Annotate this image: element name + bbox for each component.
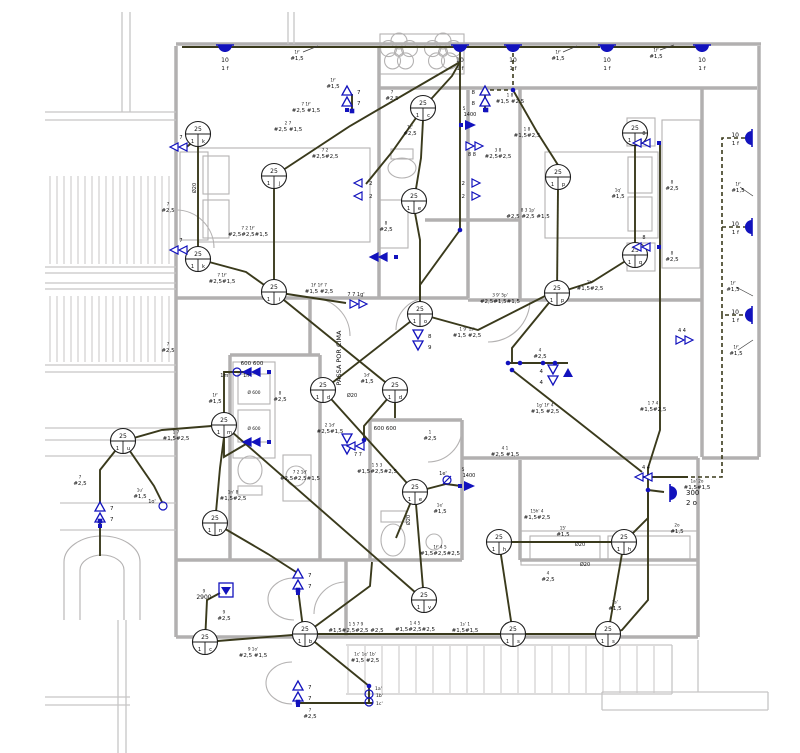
door-arc bbox=[80, 555, 124, 620]
wire-run bbox=[608, 542, 624, 634]
wire-gauge-label: Ø20 bbox=[347, 392, 357, 399]
wire-run-dashed bbox=[690, 315, 722, 477]
ceiling-point-circuit: 1 bbox=[417, 605, 420, 611]
ceiling-point-circuit: 1 bbox=[267, 297, 270, 303]
conductor-ticks: 7 bbox=[167, 202, 170, 207]
wire-gauge-label: #2,5#2,5 bbox=[312, 154, 339, 160]
conductor-ticks: 1 bbox=[429, 430, 432, 435]
conductor-ticks: 1s' bbox=[612, 600, 618, 605]
wire-gauge-label: #2,5 #1,5 bbox=[292, 108, 321, 114]
conductor-ticks: 9 bbox=[203, 589, 206, 594]
conductor-ticks: 7 bbox=[391, 90, 394, 95]
conductor-ticks: 7 2 1f' bbox=[241, 226, 254, 231]
wall-light-power: 10 bbox=[731, 132, 739, 139]
wire-gauge-label: PASSA POR CIMA bbox=[335, 330, 343, 386]
wire-gauge-label: #1,5 bbox=[670, 529, 684, 535]
outlet-arrow-icon bbox=[170, 246, 178, 254]
switch-count: 7 bbox=[308, 584, 312, 590]
switch-triangle-icon bbox=[342, 434, 352, 443]
leader-line bbox=[738, 340, 753, 350]
wire-gauge-label: #1,5 #2,5 bbox=[351, 658, 380, 664]
ceiling-point-power: 25 bbox=[119, 433, 127, 440]
ceiling-point-circuit: 1 bbox=[492, 547, 495, 553]
switch-base-icon bbox=[98, 524, 102, 528]
wire-gauge-label: #2,5#2,5 bbox=[485, 154, 512, 160]
switch-count: 7 bbox=[357, 101, 361, 107]
ceiling-point-circuit: 1 bbox=[551, 182, 554, 188]
ceiling-point-circuit: d bbox=[327, 395, 330, 401]
ceiling-point-circuit: 1 bbox=[413, 319, 416, 325]
wire-run bbox=[415, 492, 424, 600]
ceiling-point-circuit: q bbox=[639, 260, 642, 266]
switch-count: 8 bbox=[472, 90, 476, 96]
ceiling-point-circuit: 1 bbox=[408, 497, 411, 503]
wire-run bbox=[215, 523, 296, 572]
outlet-count: 7 bbox=[179, 135, 182, 141]
wire-gauge-label: #1,5 bbox=[551, 56, 565, 62]
ceiling-point-power: 25 bbox=[553, 285, 561, 292]
wire-gauge-label: #2,5 bbox=[161, 348, 175, 354]
ceiling-point-circuit: 1 bbox=[628, 138, 631, 144]
ceiling-point-circuit: u bbox=[127, 446, 130, 452]
outlet-arrow-icon bbox=[170, 143, 178, 151]
wire-gauge-label: #1,5#1,5 bbox=[452, 628, 479, 634]
outlet-count: 7 7 bbox=[354, 452, 362, 458]
wire-gauge-label: 1o' bbox=[148, 499, 156, 505]
wire-gauge-label: #1,5#2,5#2,5 bbox=[357, 469, 398, 475]
wire-gauge-label: #2,5 bbox=[161, 208, 175, 214]
wire-gauge-label: #1,5 bbox=[726, 287, 740, 293]
wire-gauge-label: #1,5 bbox=[326, 84, 340, 90]
shower-point-icon bbox=[459, 123, 463, 127]
ceiling-point-circuit: m bbox=[227, 430, 232, 436]
wire-gauge-label: #2,5#1,5 bbox=[209, 279, 236, 285]
wire-gauge-label: #2,5 bbox=[379, 227, 393, 233]
furniture-outline bbox=[662, 120, 700, 268]
outlet-count: 7 bbox=[179, 238, 182, 244]
electrical-floor-plan: 251k251j251k251i251c251e251o251d251d251p… bbox=[0, 0, 800, 753]
wire-run-dashed bbox=[722, 138, 745, 227]
wall-light-icon bbox=[670, 486, 677, 500]
wire-gauge-label: Ø20 bbox=[575, 541, 585, 548]
ceiling-point-circuit: k bbox=[202, 264, 205, 270]
ceiling-point-circuit: s bbox=[612, 639, 615, 645]
ceiling-point-circuit: v bbox=[428, 605, 431, 611]
conductor-ticks: 1n' 8 bbox=[228, 490, 239, 495]
wall-light-circuit: 1 f bbox=[732, 141, 740, 147]
junction-dot-icon bbox=[518, 361, 523, 366]
wire-gauge-label: 1m' bbox=[220, 373, 229, 379]
conductor-ticks: 9 bbox=[223, 610, 226, 615]
conductor-ticks: 7 2 bbox=[322, 148, 329, 153]
wire-gauge-label: #2,5 bbox=[303, 714, 317, 720]
switch-count: 4 bbox=[540, 380, 544, 386]
wire-gauge-label: 1a' bbox=[375, 686, 382, 692]
conductor-ticks: 1b' bbox=[587, 280, 593, 285]
ceiling-point-circuit: i bbox=[279, 297, 280, 303]
conductor-ticks: 1 7 bbox=[173, 430, 180, 435]
conductor-ticks: 1 4 5 bbox=[410, 621, 421, 626]
ceiling-point-power: 25 bbox=[554, 169, 562, 176]
conductor-ticks: 1 5 7 9 bbox=[349, 622, 364, 627]
door-arc bbox=[266, 662, 292, 704]
conductor-ticks: 3 8 bbox=[495, 148, 502, 153]
wall-light-circuit: 1 f bbox=[698, 66, 706, 72]
conductor-ticks: 1f' bbox=[653, 48, 658, 53]
switch-triangle-icon bbox=[413, 330, 423, 339]
conductor-ticks: 15h' 4 bbox=[530, 509, 543, 514]
conductor-ticks: 7 bbox=[79, 475, 82, 480]
wire-gauge-label: #2,5#2,5#1,5 bbox=[280, 476, 321, 482]
wall-light-circuit: 2 o bbox=[686, 499, 697, 507]
wire-gauge-label: 1e' bbox=[439, 471, 447, 477]
wire-gauge-label: 600 600 bbox=[241, 361, 264, 367]
plan-canvas: 251k251j251k251i251c251e251o251d251d251p… bbox=[0, 0, 800, 753]
conductor-ticks: 4 bbox=[547, 571, 550, 576]
wire-gauge-label: #2,5#1,5 bbox=[317, 429, 344, 435]
fixture-outline bbox=[238, 456, 262, 484]
conductor-ticks: 3 9' 5p' bbox=[492, 293, 508, 298]
outlet-count: 2 bbox=[462, 194, 466, 200]
ceiling-point-circuit: h bbox=[503, 547, 506, 553]
ceiling-point-power: 25 bbox=[495, 534, 503, 541]
door-arc bbox=[268, 578, 294, 620]
wire-gauge-label: #2,5 bbox=[541, 577, 555, 583]
switch-count: 7 bbox=[110, 517, 114, 523]
wire-gauge-label: #1,5#2,5 bbox=[220, 496, 247, 502]
switch-triangle-icon bbox=[293, 580, 303, 589]
conductor-ticks: 1f' bbox=[730, 281, 735, 286]
switch-triangle-icon bbox=[480, 97, 490, 106]
shower-point-icon bbox=[464, 481, 475, 491]
switch-triangle-icon bbox=[293, 681, 303, 690]
junction-dot-icon bbox=[362, 438, 367, 443]
wire-gauge-label: #1,5 bbox=[208, 399, 222, 405]
junction-dot-icon bbox=[367, 684, 372, 689]
wire-gauge-label: #2,5 bbox=[73, 481, 87, 487]
switch-triangle-icon bbox=[548, 365, 558, 374]
ceiling-point-circuit: c bbox=[427, 113, 430, 119]
equipment-box-icon bbox=[221, 587, 231, 595]
wire-gauge-label: #2,5 #1,5 bbox=[239, 653, 268, 659]
conductor-ticks: 1f' bbox=[735, 182, 740, 187]
wire-run bbox=[648, 490, 664, 492]
outlet-arrow-icon bbox=[472, 179, 480, 187]
wire-gauge-label: #1,5 bbox=[433, 509, 447, 515]
shower-count: 5 bbox=[462, 467, 465, 473]
wire-gauge-label: Ø20 bbox=[191, 183, 198, 193]
furniture-outline bbox=[381, 511, 406, 522]
tv-point-icon bbox=[563, 368, 573, 377]
conductor-ticks: 1f' bbox=[212, 393, 217, 398]
wall-light-power: 10 bbox=[509, 57, 517, 64]
conductor-ticks: 1 8 bbox=[507, 93, 514, 98]
ceiling-point-circuit: 1 bbox=[267, 181, 270, 187]
conductor-ticks: 9 1o' bbox=[248, 647, 258, 652]
conductor-ticks: 1 9' 1s' bbox=[459, 327, 474, 332]
ceiling-point-circuit: k bbox=[202, 139, 205, 145]
outlet-count: 8 bbox=[642, 131, 645, 137]
ceiling-point-power: 25 bbox=[194, 126, 202, 133]
outlet-count: 8 8 bbox=[468, 152, 476, 158]
conductor-ticks: 1c' 1e' 1b' bbox=[354, 652, 376, 657]
ceiling-point-circuit: j bbox=[278, 181, 280, 187]
conductor-ticks: 1f' bbox=[330, 78, 335, 83]
outlet-count: 2 bbox=[462, 181, 466, 187]
outlet-arrow-icon bbox=[635, 473, 643, 481]
conductor-ticks: 1 5 3 bbox=[372, 463, 383, 468]
conduit-box-icon bbox=[350, 109, 355, 114]
conductor-ticks: 1f' bbox=[733, 345, 738, 350]
ceiling-point-circuit: 1 bbox=[550, 298, 553, 304]
wire-gauge-label: #1,5#2,5#2,5 bbox=[395, 627, 436, 633]
fixture-outline bbox=[381, 524, 405, 556]
conductor-ticks: 1e' bbox=[437, 503, 443, 508]
wire-gauge-label: #1,5 bbox=[649, 54, 663, 60]
conductor-ticks: 1 8 bbox=[524, 127, 531, 132]
wire-gauge-label: #1,5#2,5 bbox=[163, 436, 190, 442]
wire-run bbox=[274, 62, 460, 176]
conductor-ticks: 1a' 2o bbox=[691, 479, 704, 484]
ceiling-point-circuit: 1 bbox=[416, 113, 419, 119]
outlet-arrow-icon bbox=[475, 142, 483, 150]
switch-triangle-icon bbox=[293, 692, 303, 701]
ceiling-point-power: 25 bbox=[509, 626, 517, 633]
wire-gauge-label: Ø 600 bbox=[248, 389, 261, 396]
junction-dot-icon bbox=[541, 361, 546, 366]
wire-gauge-label: 1c' bbox=[376, 701, 383, 707]
wall-light-power: 10 bbox=[603, 57, 611, 64]
wall-light-circuit: 1 f bbox=[221, 66, 229, 72]
ceiling-point-circuit: d bbox=[399, 395, 402, 401]
junction-dot-icon bbox=[646, 488, 651, 493]
wire-gauge-label: Ø20 bbox=[405, 515, 412, 525]
ceiling-point-circuit: 1 bbox=[617, 547, 620, 553]
outlet-arrow-icon bbox=[354, 179, 362, 187]
wire-gauge-label: #2,5#1,5#1,5 bbox=[480, 299, 521, 305]
conductor-ticks: 1c' bbox=[407, 125, 413, 130]
outlet-arrow-icon bbox=[370, 253, 378, 261]
ceiling-point-circuit: 1 bbox=[217, 430, 220, 436]
outlet-arrow-icon bbox=[179, 246, 187, 254]
wire-gauge-label: #1,5 bbox=[611, 194, 625, 200]
wire-gauge-label: #2,5 #1,5 bbox=[274, 127, 303, 133]
outlet-arrow-icon bbox=[359, 300, 367, 308]
outlet-count: 2 bbox=[369, 194, 373, 200]
furniture-outline bbox=[530, 536, 600, 560]
wire-gauge-label: #1,5 bbox=[556, 532, 570, 538]
ceiling-point-circuit: s bbox=[517, 639, 520, 645]
wall-light-power: 10 bbox=[731, 221, 739, 228]
wire-gauge-label: #1,5 #2,5 bbox=[496, 99, 525, 105]
ceiling-point-power: 25 bbox=[604, 626, 612, 633]
wire-run bbox=[499, 542, 513, 634]
conductor-ticks: 1 7 4 bbox=[648, 401, 659, 406]
conductor-ticks: 7 1f' bbox=[301, 102, 310, 107]
wall-light-circuit: 1 f bbox=[603, 66, 611, 72]
outlet-count: 4 4 bbox=[678, 328, 686, 334]
conductor-ticks: 1u' bbox=[137, 488, 143, 493]
outlet-base-icon bbox=[267, 370, 271, 374]
wire-gauge-label: #1,5 #2,5 bbox=[531, 409, 560, 415]
conductor-ticks: 1s' 1 bbox=[460, 622, 470, 627]
switch-count: 7 bbox=[308, 573, 312, 579]
outlet-count: 4 4 bbox=[642, 465, 650, 471]
outlet-base-icon bbox=[394, 255, 398, 259]
wire-gauge-label: #2,5#2,5#1,5 bbox=[228, 232, 269, 238]
wire-gauge-label: #2,5 bbox=[533, 354, 547, 360]
wire-run bbox=[557, 189, 558, 293]
ceiling-point-power: 25 bbox=[301, 626, 309, 633]
wire-gauge-label: #1,5#2,5 bbox=[514, 133, 541, 139]
ceiling-point-circuit: 1 bbox=[506, 639, 509, 645]
junction-dot-icon bbox=[458, 228, 463, 233]
outlet-base-icon bbox=[657, 141, 661, 145]
ceiling-point-circuit: e bbox=[419, 497, 422, 503]
switch-triangle-icon bbox=[342, 86, 352, 95]
shower-count: 5 bbox=[463, 106, 466, 112]
ceiling-point-circuit: 1 bbox=[388, 395, 391, 401]
outlet-arrow-icon bbox=[676, 336, 684, 344]
ceiling-point-power: 25 bbox=[220, 417, 228, 424]
junction-dot-icon bbox=[506, 361, 511, 366]
ceiling-point-power: 25 bbox=[631, 125, 639, 132]
wire-run-dashed bbox=[722, 227, 745, 315]
switch-count: 7 bbox=[110, 506, 114, 512]
wire-gauge-label: Ø20 bbox=[580, 561, 590, 568]
conductor-ticks: 4 1 bbox=[502, 446, 509, 451]
outlet-base-icon bbox=[267, 440, 271, 444]
outlet-arrow-icon bbox=[354, 192, 362, 200]
furniture-outline bbox=[203, 156, 229, 194]
outlet-arrow-icon bbox=[179, 143, 187, 151]
conductor-ticks: 8 bbox=[385, 221, 388, 226]
conduit-box-icon bbox=[484, 108, 489, 113]
furniture-outline bbox=[203, 200, 229, 238]
fixture-outline bbox=[388, 158, 416, 178]
wire-run bbox=[608, 247, 660, 634]
conduit-box-icon bbox=[296, 588, 301, 593]
wire-gauge-label: #2,5 bbox=[403, 131, 417, 137]
wire-gauge-label: #2,5 bbox=[385, 96, 399, 102]
conductor-ticks: 8 bbox=[279, 391, 282, 396]
switch-count: 7 bbox=[308, 696, 312, 702]
ceiling-point-circuit: h bbox=[628, 547, 631, 553]
wire-gauge-label: #1,5#1,5 bbox=[684, 485, 711, 491]
wire-gauge-label: 600 600 bbox=[374, 426, 397, 432]
conductor-ticks: 7 2 1d' bbox=[293, 470, 307, 475]
wire-gauge-label: #1,5 bbox=[133, 494, 147, 500]
outlet-count: 8 bbox=[642, 235, 645, 241]
wire-gauge-label: 1n' bbox=[243, 373, 251, 379]
conductor-ticks: 1f' 1f' 7 bbox=[311, 283, 327, 288]
wire-gauge-label: #1,5#2,5 bbox=[577, 286, 604, 292]
wall-light-circuit: 1 f bbox=[456, 66, 464, 72]
ceiling-point-power: 25 bbox=[410, 193, 418, 200]
ceiling-point-circuit: 1 bbox=[298, 639, 301, 645]
conductor-ticks: 2o bbox=[674, 523, 680, 528]
switch-base-icon bbox=[345, 108, 349, 112]
outlet-count: 2 bbox=[369, 181, 373, 187]
ceiling-point-power: 25 bbox=[194, 251, 202, 258]
conduit-box-icon bbox=[98, 519, 103, 524]
ceiling-point-circuit: 1 bbox=[628, 260, 631, 266]
wire-gauge-label: #1,5 #2,5 bbox=[305, 289, 334, 295]
ceiling-point-circuit: 1 bbox=[208, 528, 211, 534]
wire-gauge-label: #1,5 bbox=[360, 379, 374, 385]
wire-gauge-label: #1,5 #2,5 bbox=[453, 333, 482, 339]
conductor-ticks: 2 1d' bbox=[325, 423, 335, 428]
shower-power: 1400 bbox=[464, 112, 477, 118]
ceiling-point-power: 25 bbox=[270, 168, 278, 175]
ceiling-point-circuit: 1 bbox=[191, 139, 194, 145]
switch-count: 8 bbox=[472, 101, 476, 107]
wire-gauge-label: #1,5 bbox=[290, 56, 304, 62]
ceiling-point-circuit: 1 bbox=[601, 639, 604, 645]
wire-gauge-label: #2,5 bbox=[665, 186, 679, 192]
junction-dot-icon bbox=[510, 368, 515, 373]
switch-count: 7 bbox=[308, 685, 312, 691]
wire-gauge-label: #1,5#2,5 bbox=[524, 515, 551, 521]
furniture-outline bbox=[238, 410, 270, 442]
door-arc bbox=[64, 536, 140, 620]
switch-count: 7 bbox=[357, 90, 361, 96]
wire-gauge-label: #1,5#2,5#2,5 #2,5 bbox=[328, 628, 384, 634]
conductor-ticks: 1f' 4 5 bbox=[433, 545, 447, 550]
wire-gauge-label: #1,5 bbox=[731, 188, 745, 194]
wire-gauge-label: #2,5 bbox=[665, 257, 679, 263]
wire-gauge-label: 1b' bbox=[376, 693, 383, 699]
wire-gauge-label: #1,5#2,5 bbox=[640, 407, 667, 413]
wall-light-circuit: 1 f bbox=[732, 318, 740, 324]
conductor-ticks: 2 7 bbox=[285, 121, 292, 126]
wall-light-power: 10 bbox=[698, 57, 706, 64]
outlet-base-icon bbox=[657, 245, 661, 249]
conductor-ticks: 8 bbox=[671, 180, 674, 185]
wire-run bbox=[224, 425, 424, 600]
conductor-ticks: 1g' 1f' 4 bbox=[536, 403, 553, 408]
ceiling-point-circuit: 1 bbox=[407, 206, 410, 212]
switch-count: 9 bbox=[428, 345, 432, 351]
ceiling-point-circuit: 1 bbox=[316, 395, 319, 401]
conductor-ticks: 1q' bbox=[615, 188, 621, 193]
ceiling-point-circuit: n bbox=[219, 528, 222, 534]
ceiling-point-power: 25 bbox=[391, 382, 399, 389]
wire-gauge-label: #2,5 #2,5 #1,5 bbox=[506, 214, 550, 220]
wire-gauge-label: Ø 600 bbox=[248, 425, 261, 432]
door-arc bbox=[428, 428, 462, 462]
wall-light-circuit: 1 f bbox=[509, 66, 517, 72]
outlet-arrow-icon bbox=[685, 336, 693, 344]
switch-triangle-icon bbox=[342, 97, 352, 106]
ceiling-point-power: 25 bbox=[420, 592, 428, 599]
outlet-arrow-icon bbox=[356, 442, 364, 450]
wire-gauge-label: #2,5 bbox=[273, 397, 287, 403]
ceiling-point-power: 25 bbox=[201, 634, 209, 641]
shower-point-icon bbox=[465, 120, 476, 130]
conductor-ticks: 7 bbox=[309, 708, 312, 713]
ceiling-point-circuit: 1 bbox=[116, 446, 119, 452]
ceiling-point-circuit: 1 bbox=[191, 264, 194, 270]
ceiling-point-power: 25 bbox=[211, 515, 219, 522]
outlet-arrow-icon bbox=[472, 192, 480, 200]
conduit-box-icon bbox=[296, 700, 301, 705]
ceiling-point-circuit: o bbox=[424, 319, 427, 325]
conductor-ticks: 4 bbox=[539, 348, 542, 353]
furniture-outline bbox=[628, 157, 652, 193]
wire-gauge-label: #1,5 bbox=[729, 351, 743, 357]
wall-light-power: 10 bbox=[456, 57, 464, 64]
